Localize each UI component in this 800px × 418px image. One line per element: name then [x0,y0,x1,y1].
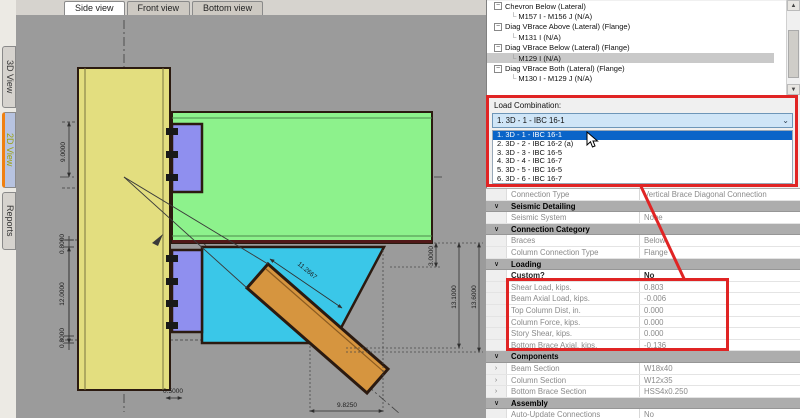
tree-item-diag-vbrace-above-lateral-flange[interactable]: −Diag VBrace Above (Lateral) (Flange) [487,22,786,32]
drawing-canvas[interactable]: 9.0000 0.8000 12.0000 0.8000 0.5000 9.82… [16,15,486,418]
tree-subitem-m131-i-n-a[interactable]: └M131 I (N/A) [487,32,774,42]
sidebar-tab-reports[interactable]: Reports [2,192,16,250]
property-row-connection-type[interactable]: Connection TypeVertical Brace Diagonal C… [486,189,800,201]
tree-subitem-label: M130 I - M129 J (N/A) [518,74,592,83]
property-value: 0.000 [640,305,800,316]
row-gutter [486,247,507,258]
row-gutter [486,282,507,293]
property-value: 0.803 [640,282,800,293]
property-value: -0.006 [640,293,800,304]
row-expander-icon[interactable]: › [486,386,507,397]
connections-tree[interactable]: −Chevron Below (Lateral)└M157 I - M156 J… [487,1,786,95]
property-name: Braces [507,235,640,246]
row-gutter [486,409,507,418]
property-row-beam-axial-load-kips[interactable]: Beam Axial Load, kips.-0.006 [486,293,800,305]
property-value: 0.000 [640,328,800,339]
property-name: Column Force, kips. [507,317,640,328]
section-header-loading[interactable]: ∨Loading [486,259,800,271]
collapse-icon[interactable]: − [494,2,502,10]
view-tab-side-view[interactable]: Side view [64,1,125,15]
tree-item-label: Chevron Below (Lateral) [505,2,586,11]
scroll-down-icon[interactable]: ▼ [787,84,800,95]
dim-left-gusset-height: 12.0000 [59,282,66,306]
beam-shape[interactable] [172,112,432,243]
dim-bottom-width: 9.8250 [337,402,357,409]
property-value: Flange [640,247,800,258]
property-value: HSS4x0.250 [640,386,800,397]
property-row-top-column-dist-in[interactable]: Top Column Dist, in.0.000 [486,305,800,317]
property-value: None [640,212,800,223]
property-row-bottom-brace-axial-kips[interactable]: Bottom Brace Axial, kips.-0.136 [486,340,800,352]
section-title: Components [507,351,800,362]
section-title: Loading [507,259,800,270]
view-tab-bottom-view[interactable]: Bottom view [192,1,263,15]
property-name: Seismic System [507,212,640,223]
property-row-column-force-kips[interactable]: Column Force, kips.0.000 [486,317,800,329]
tree-subitem-m157-i-m156-j-n-a[interactable]: └M157 I - M156 J (N/A) [487,11,774,21]
property-row-seismic-system[interactable]: Seismic SystemNone [486,212,800,224]
property-row-column-section[interactable]: ›Column SectionW12x35 [486,375,800,387]
property-name: Auto-Update Connections [507,409,640,418]
property-name: Column Section [507,375,640,386]
load-combination-selected: 1. 3D - 1 - IBC 16-1 [497,116,565,125]
chevron-down-icon[interactable]: ∨ [486,224,507,235]
property-name: Beam Section [507,363,640,374]
property-name: Column Connection Type [507,247,640,258]
tree-subitem-label: M129 I (N/A) [518,54,561,63]
row-gutter [486,305,507,316]
property-name: Custom? [507,270,640,281]
row-gutter [486,328,507,339]
row-gutter [486,293,507,304]
tree-item-label: Diag VBrace Below (Lateral) (Flange) [505,43,630,52]
property-name: Shear Load, kips. [507,282,640,293]
section-header-connection-category[interactable]: ∨Connection Category [486,224,800,236]
column-shape[interactable] [78,68,170,390]
property-row-shear-load-kips[interactable]: Shear Load, kips.0.803 [486,282,800,294]
property-name: Connection Type [507,189,640,200]
chevron-down-icon[interactable]: ∨ [486,259,507,270]
dim-base-setback: 0.5000 [163,388,183,395]
row-expander-icon[interactable]: › [486,363,507,374]
row-gutter [486,189,507,200]
shear-plate-bottom[interactable] [172,250,202,332]
property-value: Below [640,235,800,246]
application-window: 3D View 2D View Reports Side viewFront v… [0,0,800,418]
property-value: -0.136 [640,340,800,351]
property-row-braces[interactable]: BracesBelow [486,235,800,247]
property-row-beam-section[interactable]: ›Beam SectionW18x40 [486,363,800,375]
tree-item-diag-vbrace-below-lateral-flange[interactable]: −Diag VBrace Below (Lateral) (Flange) [487,43,786,53]
row-expander-icon[interactable]: › [486,375,507,386]
dim-right-small: 3.0000 [428,246,435,266]
property-value: 0.000 [640,317,800,328]
property-name: Story Shear, kips. [507,328,640,339]
view-tab-bar: Side viewFront viewBottom view [16,0,486,15]
property-value: W18x40 [640,363,800,374]
collapse-icon[interactable]: − [494,44,502,52]
tree-branch-icon: └ [511,33,516,42]
load-combination-list[interactable]: 1. 3D - 1 - IBC 16-12. 3D - 2 - IBC 16-2… [492,130,793,184]
properties-grid: Connection TypeVertical Brace Diagonal C… [486,188,800,418]
property-value: No [640,270,800,281]
property-row-custom[interactable]: Custom?No [486,270,800,282]
chevron-down-icon[interactable]: ∨ [486,201,507,212]
scrollbar-thumb[interactable] [788,30,799,78]
tree-subitem-m129-i-n-a[interactable]: └M129 I (N/A) [487,53,774,63]
property-row-bottom-brace-section[interactable]: ›Bottom Brace SectionHSS4x0.250 [486,386,800,398]
tree-subitem-m130-i-m129-j-n-a[interactable]: └M130 I - M129 J (N/A) [487,74,774,84]
property-row-story-shear-kips[interactable]: Story Shear, kips.0.000 [486,328,800,340]
scroll-up-icon[interactable]: ▲ [787,0,800,11]
dim-right-outer: 13.6000 [471,285,478,309]
dim-left-offset-bottom: 0.8000 [59,328,66,348]
load-combination-label: Load Combination: [494,101,561,110]
section-header-seismic-detailing[interactable]: ∨Seismic Detailing [486,201,800,213]
tree-subitem-label: M157 I - M156 J (N/A) [518,12,592,21]
section-title: Seismic Detailing [507,201,800,212]
collapse-icon[interactable]: − [494,23,502,31]
chevron-down-icon[interactable]: ⌄ [782,114,789,127]
property-row-auto-update-connections[interactable]: Auto-Update ConnectionsNo [486,409,800,418]
row-gutter [486,270,507,281]
property-name: Bottom Brace Axial, kips. [507,340,640,351]
property-value: No [640,409,800,418]
chevron-down-icon[interactable]: ∨ [486,351,507,362]
load-combination-dropdown[interactable]: 1. 3D - 1 - IBC 16-1 ⌄ [492,113,793,128]
property-value: Vertical Brace Diagonal Connection [640,189,800,200]
section-title: Assembly [507,398,800,409]
property-name: Top Column Dist, in. [507,305,640,316]
tree-subitem-label: M131 I (N/A) [518,33,561,42]
property-name: Beam Axial Load, kips. [507,293,640,304]
tree-item-label: Diag VBrace Above (Lateral) (Flange) [505,22,630,31]
chevron-down-icon[interactable]: ∨ [486,398,507,409]
collapse-icon[interactable]: − [494,65,502,73]
sidebar-tab-2d-view[interactable]: 2D View [2,112,16,188]
tree-branch-icon: └ [511,74,516,83]
row-gutter [486,340,507,351]
row-gutter [486,212,507,223]
left-tab-strip: 3D View 2D View Reports [0,0,16,418]
section-header-assembly[interactable]: ∨Assembly [486,398,800,410]
dim-left-offset-top: 0.8000 [59,234,66,254]
tree-item-label: Diag VBrace Both (Lateral) (Flange) [505,64,625,73]
tree-item-diag-vbrace-both-lateral-flange[interactable]: −Diag VBrace Both (Lateral) (Flange) [487,63,786,73]
row-gutter [486,235,507,246]
view-tab-front-view[interactable]: Front view [127,1,191,15]
tree-branch-icon: └ [511,54,516,63]
property-value: W12x35 [640,375,800,386]
tree-item-chevron-below-lateral[interactable]: −Chevron Below (Lateral) [487,1,786,11]
row-gutter [486,317,507,328]
dim-left-height: 9.0000 [60,142,67,162]
tree-branch-icon: └ [511,12,516,21]
section-header-components[interactable]: ∨Components [486,351,800,363]
tree-scrollbar[interactable]: ▲ ▼ [786,0,800,95]
property-row-column-connection-type[interactable]: Column Connection TypeFlange [486,247,800,259]
property-name: Bottom Brace Section [507,386,640,397]
section-title: Connection Category [507,224,800,235]
load-combo-option-6[interactable]: 6. 3D - 6 - IBC 16-7 [493,175,792,184]
sidebar-tab-3d-view[interactable]: 3D View [2,46,16,108]
dim-right-inner: 13.1000 [451,285,458,309]
